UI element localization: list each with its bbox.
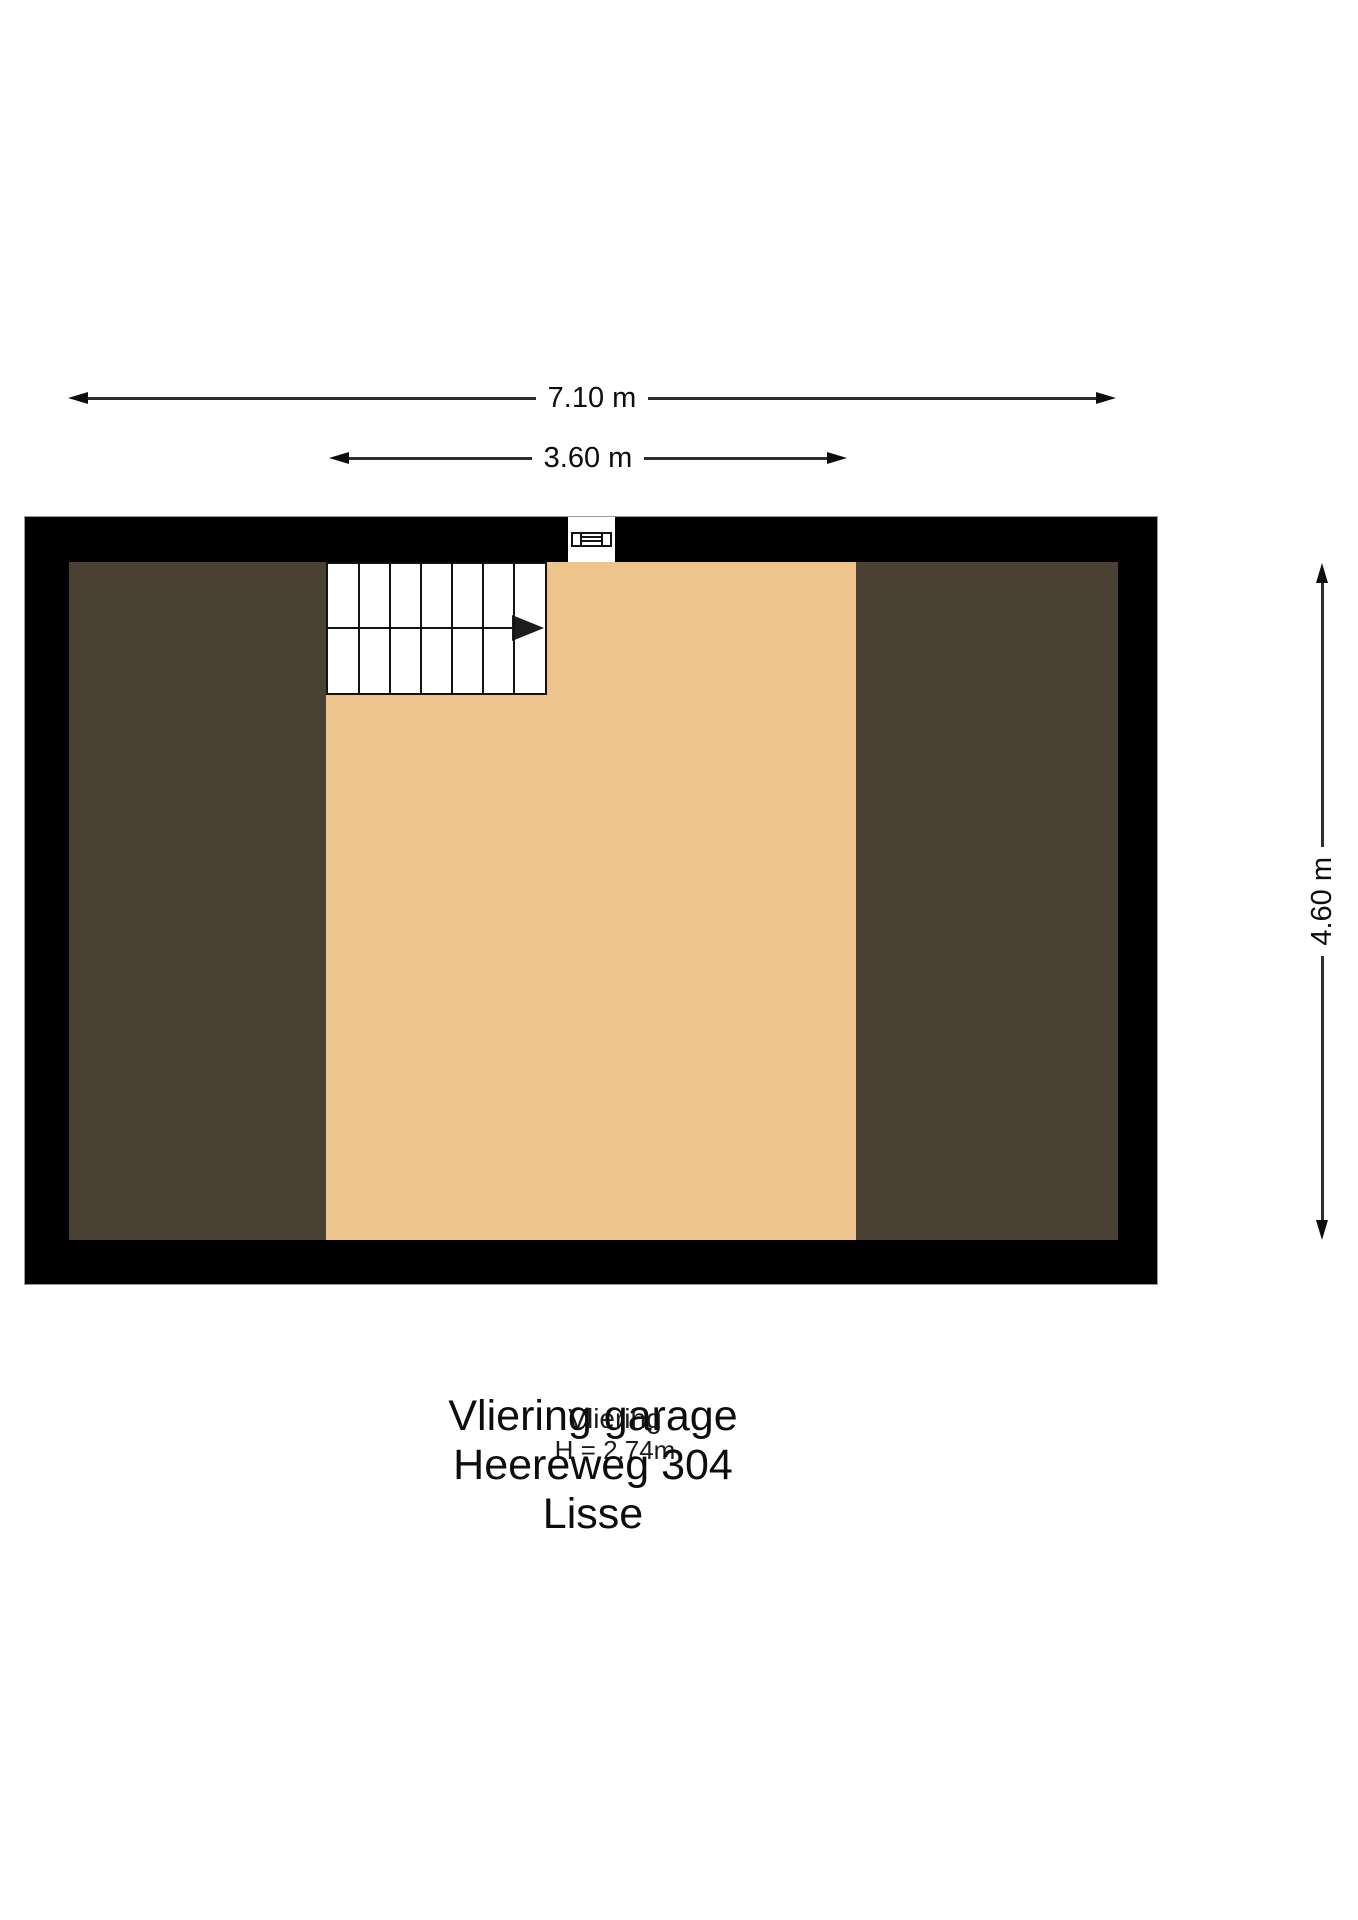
arrowhead-down-icon (1316, 1220, 1328, 1240)
stair-direction-arrow-icon (512, 615, 544, 641)
stair-tread-line (482, 564, 484, 693)
arrowhead-left-icon (68, 392, 88, 404)
hatch-ladder-icon (571, 532, 612, 547)
floor-area-right (856, 562, 1118, 1240)
dimension-line (349, 457, 532, 460)
stairs (326, 562, 547, 695)
arrowhead-right-icon (1096, 392, 1116, 404)
caption: Vliering garage Heereweg 304 Lisse (343, 1392, 843, 1539)
dimension-total-width: 7.10 m (68, 384, 1116, 412)
dimension-total-depth: 4.60 m (1314, 563, 1330, 1240)
dimension-line (1321, 956, 1324, 1220)
dimension-line (648, 397, 1096, 400)
floorplan-page: 7.10 m 3.60 m Vliering H = 2.7 (0, 0, 1358, 1920)
wall-opening (568, 517, 615, 562)
floorplan: Vliering H = 2.74m (25, 517, 1157, 1284)
stair-tread-line (358, 564, 360, 693)
caption-line-1: Vliering garage (343, 1392, 843, 1441)
dimension-inner-width: 3.60 m (329, 444, 847, 472)
stair-tread-line (389, 564, 391, 693)
dimension-inner-width-label: 3.60 m (532, 444, 645, 472)
caption-line-2: Heereweg 304 (343, 1441, 843, 1490)
arrowhead-right-icon (827, 452, 847, 464)
stair-mid-line (328, 627, 516, 629)
caption-line-3: Lisse (343, 1490, 843, 1539)
dimension-line (1321, 583, 1324, 847)
dimension-total-width-label: 7.10 m (536, 384, 649, 412)
floor-area-left (69, 562, 326, 1240)
arrowhead-up-icon (1316, 563, 1328, 583)
dimension-line (644, 457, 827, 460)
stair-tread-line (420, 564, 422, 693)
stair-tread-line (451, 564, 453, 693)
dimension-total-depth-label: 4.60 m (1306, 847, 1339, 956)
arrowhead-left-icon (329, 452, 349, 464)
stair-tread-line (513, 564, 515, 693)
dimension-line (88, 397, 536, 400)
